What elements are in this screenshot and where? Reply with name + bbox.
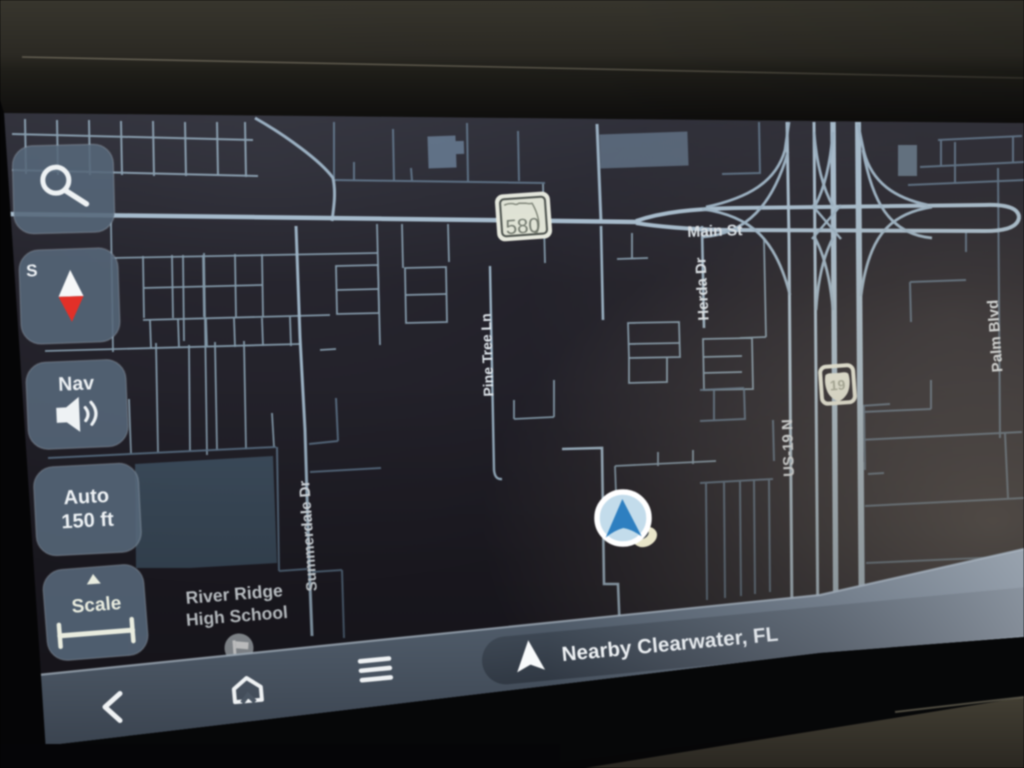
- svg-text:Nav: Nav: [58, 372, 95, 396]
- svg-text:S: S: [26, 261, 38, 280]
- svg-text:150 ft: 150 ft: [61, 509, 115, 534]
- svg-text:Auto: Auto: [63, 485, 110, 509]
- svg-text:Scale: Scale: [71, 593, 122, 618]
